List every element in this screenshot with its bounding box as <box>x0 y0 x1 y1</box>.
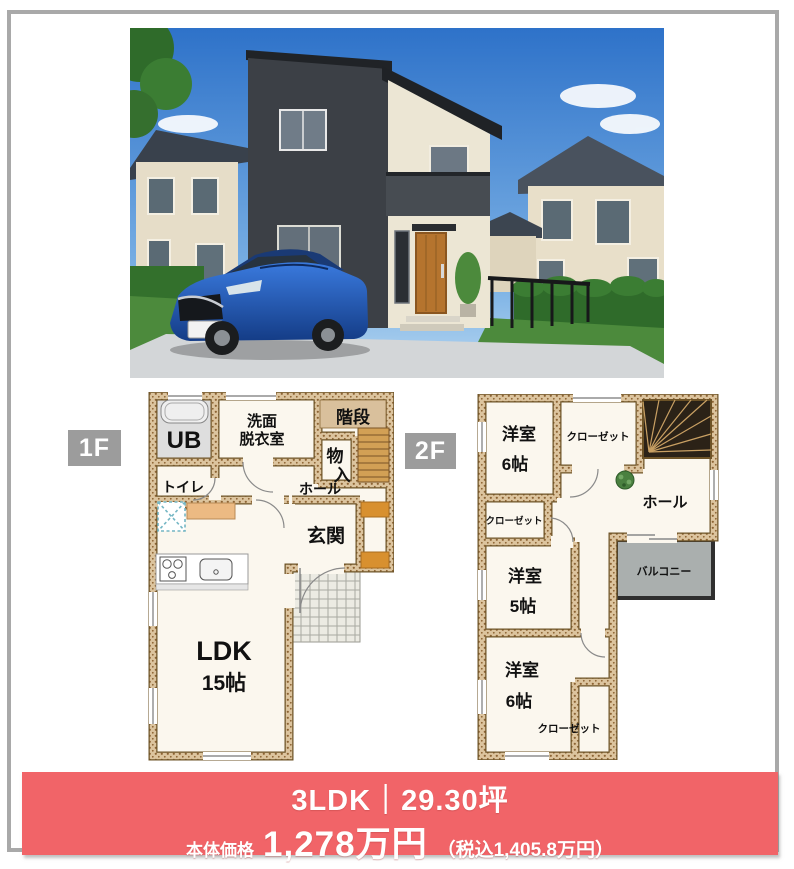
room-label-genkan: 玄関 <box>307 524 345 547</box>
room-label-hall-2f: ホール <box>642 494 687 511</box>
room-label-kaidan: 階段 <box>336 407 370 427</box>
floor-plan-2f: 洋室 6帖 クローゼット ホール クローゼット 洋室 5帖 バルコニー 洋室 6… <box>477 394 719 760</box>
bathtub-icon <box>161 400 208 423</box>
banner-headline: 3LDK｜29.30坪 <box>22 777 778 819</box>
floor-badge-2f: 2F <box>405 433 456 469</box>
kitchen-counter <box>156 554 248 590</box>
price-banner: 3LDK｜29.30坪 本体価格 1,278万円 （税込1,405.8万円） <box>22 772 778 855</box>
banner-price-line: 本体価格 1,278万円 （税込1,405.8万円） <box>22 816 778 867</box>
room-label-balcony: バルコニー <box>637 565 692 578</box>
floor-plan-1f: UB 洗面 脱衣室 階段 物 入 トイレ ホール 玄関 LDK 15帖 <box>148 392 394 762</box>
room-label-ldk-size: 15帖 <box>202 672 246 695</box>
room-label-west-bottom-size: 6帖 <box>506 691 532 711</box>
room-label-ub: UB <box>167 427 202 454</box>
price-value: 1,278万円 <box>263 816 428 867</box>
entrance-porch-tiles <box>292 572 360 642</box>
price-tax-note: （税込1,405.8万円） <box>437 835 614 862</box>
room-label-west-mid: 洋室 <box>508 566 542 586</box>
counter-top <box>187 503 235 519</box>
entry-step <box>361 552 389 568</box>
room-label-west-bottom: 洋室 <box>505 660 539 680</box>
floor-badge-1f: 1F <box>68 430 121 466</box>
stairs-2f <box>643 400 711 458</box>
room-label-closet-mid: クローゼット <box>485 515 542 527</box>
room-label-monoire1: 物 <box>327 446 344 466</box>
entry-step <box>361 502 389 517</box>
price-label: 本体価格 <box>186 836 254 861</box>
room-label-west-top: 洋室 <box>502 424 536 444</box>
room-label-senmen2: 脱衣室 <box>239 430 284 448</box>
room-label-hall: ホール <box>299 481 341 497</box>
room-label-toilet: トイレ <box>162 479 204 495</box>
flyer-page: 1F 2F <box>0 0 794 869</box>
stairs-1f <box>358 428 389 482</box>
room-label-west-mid-size: 5帖 <box>510 596 536 616</box>
plant-icon <box>616 471 634 489</box>
room-label-ldk: LDK <box>196 636 252 666</box>
room-label-closet-bottom: クローゼット <box>538 722 601 735</box>
room-label-senmen1: 洗面 <box>247 412 277 430</box>
room-label-closet-top: クローゼット <box>567 430 630 443</box>
room-label-west-top-size: 6帖 <box>502 454 528 474</box>
refrigerator-space <box>158 502 185 531</box>
house-exterior-photo <box>130 28 664 378</box>
